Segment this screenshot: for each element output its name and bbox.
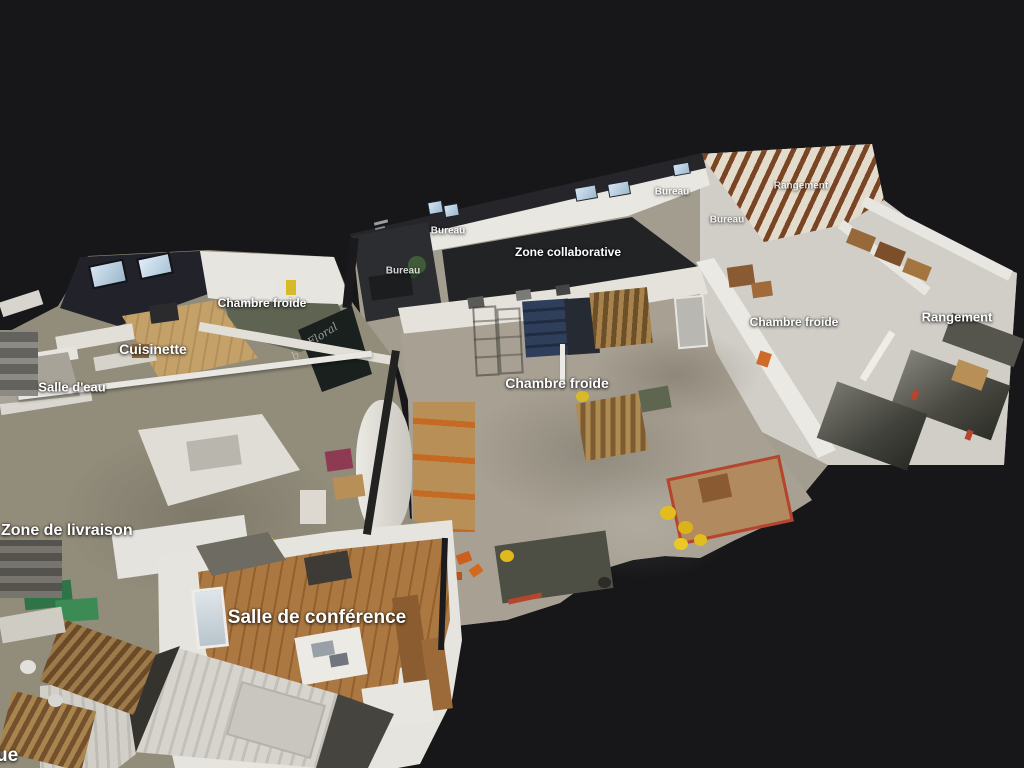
paper-stack — [300, 490, 326, 524]
yellow-object — [576, 391, 589, 402]
room-label-cuisinette[interactable]: Cuisinette — [119, 341, 187, 357]
conference-window — [191, 586, 229, 649]
room-label-chambre-froide-center[interactable]: Chambre froide — [505, 375, 608, 391]
dollhouse-viewport[interactable]: Floral b — [0, 0, 1024, 768]
metal-rack — [496, 307, 523, 374]
shelving-rack — [0, 540, 62, 598]
room-label-bureau-top[interactable]: Bureau — [655, 187, 689, 198]
pallet-stack — [589, 287, 653, 349]
white-sack — [48, 694, 63, 707]
yellow-object — [678, 521, 693, 534]
magenta-box — [325, 448, 354, 471]
room-label-rangement-top[interactable]: Rangement — [774, 181, 828, 192]
floor-drain — [598, 577, 611, 588]
wall-fragment — [0, 290, 43, 317]
room-label-bureau-upper[interactable]: Bureau — [710, 215, 744, 226]
window — [427, 200, 444, 215]
yellow-object — [500, 550, 514, 562]
white-sack — [20, 660, 36, 674]
storage-boxes — [751, 281, 773, 299]
room-label-rangement-right[interactable]: Rangement — [922, 310, 993, 325]
room-label-salle-de-conference[interactable]: Salle de conférence — [228, 607, 406, 629]
cardboard-shelf-rack — [413, 402, 475, 532]
room-label-zone-de-livraison[interactable]: Zone de livraison — [1, 522, 133, 540]
room-label-partial-cutoff[interactable]: ue — [0, 745, 18, 767]
appliance — [149, 302, 179, 324]
yellow-object — [694, 534, 707, 546]
wall-marking — [374, 219, 388, 225]
yellow-object — [660, 506, 676, 520]
wooden-pallet — [575, 393, 648, 461]
window — [443, 203, 460, 218]
cardboard-box — [333, 474, 366, 500]
shelving-rack — [0, 330, 38, 396]
metal-rack — [472, 305, 500, 376]
room-label-salle-deau[interactable]: Salle d'eau — [38, 380, 105, 395]
yellow-object — [286, 280, 296, 295]
room-label-zone-collaborative[interactable]: Zone collaborative — [515, 245, 621, 259]
room-label-chambre-froide-right[interactable]: Chambre froide — [750, 315, 839, 329]
yellow-object — [674, 538, 688, 550]
appliance — [555, 284, 570, 296]
room-label-bureau-left-a[interactable]: Bureau — [431, 226, 465, 237]
appliance — [515, 289, 531, 301]
room-label-bureau-left-b[interactable]: Bureau — [386, 266, 420, 277]
room-label-chambre-froide-left[interactable]: Chambre froide — [218, 296, 307, 310]
door-frame — [674, 295, 708, 349]
